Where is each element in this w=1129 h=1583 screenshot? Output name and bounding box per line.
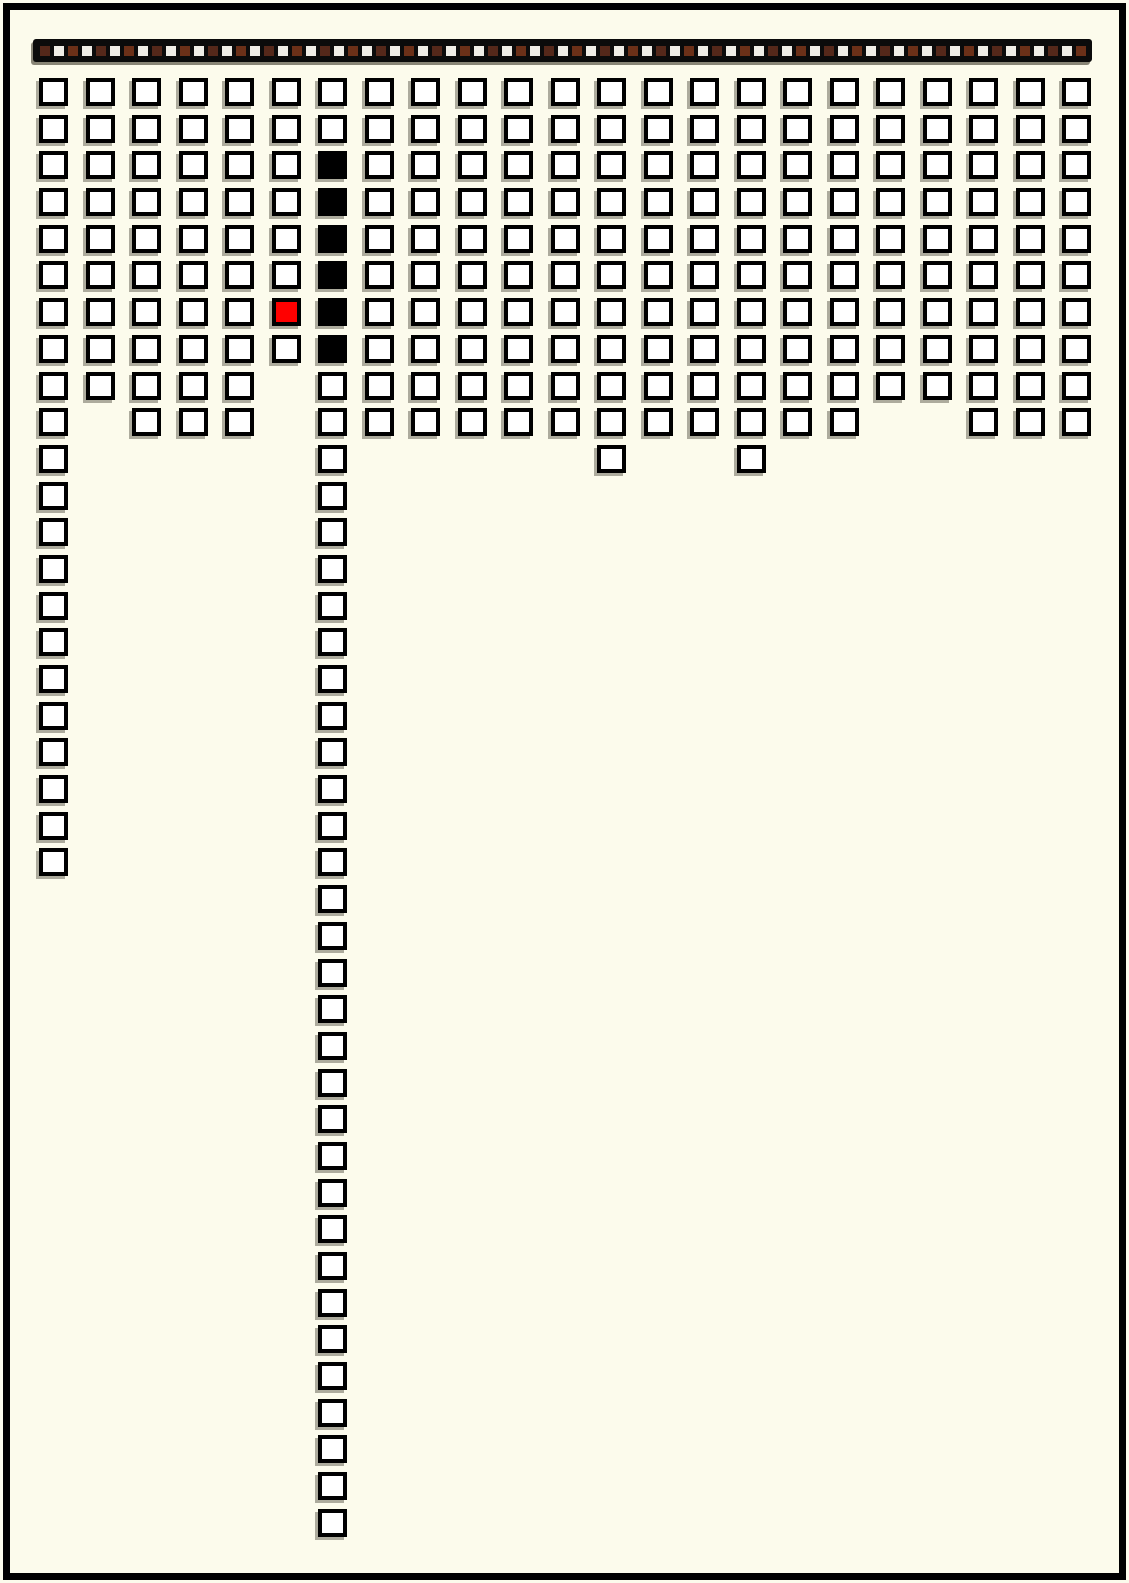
checkbox-cell[interactable]: [551, 372, 580, 400]
checkbox-cell[interactable]: [923, 335, 952, 363]
checkbox-cell[interactable]: [923, 188, 952, 216]
strip-cell-brown: [544, 46, 554, 56]
strip-cell-brown: [740, 46, 750, 56]
checkbox-cell[interactable]: [504, 115, 533, 143]
checkbox-cell[interactable]: [365, 261, 394, 289]
checkbox-cell[interactable]: [597, 78, 626, 106]
checkbox-cell[interactable]: [39, 555, 68, 583]
checkbox-cell[interactable]: [86, 151, 115, 179]
checkbox-cell[interactable]: [132, 225, 161, 253]
strip-cell-brown: [320, 46, 330, 56]
checkbox-cell[interactable]: [644, 335, 673, 363]
checkbox-cell[interactable]: [132, 151, 161, 179]
strip-cell-brown: [292, 46, 302, 56]
checkbox-cell[interactable]: [318, 1069, 347, 1097]
checkbox-column-21: [969, 78, 998, 436]
checkbox-cell[interactable]: [830, 335, 859, 363]
checkbox-cell[interactable]: [458, 261, 487, 289]
checkbox-cell[interactable]: [690, 408, 719, 436]
checkbox-cell[interactable]: [644, 115, 673, 143]
checkbox-cell[interactable]: [179, 115, 208, 143]
checkbox-cell[interactable]: [876, 151, 905, 179]
checkbox-cell[interactable]: [86, 188, 115, 216]
checkbox-cell[interactable]: [737, 372, 766, 400]
checkbox-cell[interactable]: [783, 372, 812, 400]
checkbox-cell[interactable]: [318, 372, 347, 400]
checkbox-cell[interactable]: [365, 335, 394, 363]
checkbox-cell[interactable]: [783, 188, 812, 216]
strip-cell-brown: [964, 46, 974, 56]
strip-cell-brown: [152, 46, 162, 56]
checkbox-cell[interactable]: [39, 261, 68, 289]
checkbox-cell[interactable]: [597, 261, 626, 289]
checkbox-cell[interactable]: [1062, 151, 1091, 179]
checkbox-cell[interactable]: [411, 115, 440, 143]
checkbox-cell[interactable]: [504, 298, 533, 326]
checkbox-cell[interactable]: [179, 372, 208, 400]
checkbox-cell[interactable]: [86, 372, 115, 400]
checkbox-cell[interactable]: [86, 261, 115, 289]
checkbox-cell[interactable]: [969, 225, 998, 253]
checkbox-cell[interactable]: [597, 151, 626, 179]
checkbox-cell[interactable]: [318, 665, 347, 693]
checkbox-cell[interactable]: [458, 335, 487, 363]
checkbox-cell[interactable]: [132, 298, 161, 326]
checkbox-cell[interactable]: [690, 151, 719, 179]
checkbox-cell[interactable]: [551, 78, 580, 106]
checkbox-cell[interactable]: [458, 115, 487, 143]
checkbox-cell[interactable]: [1016, 408, 1045, 436]
checkbox-cell[interactable]: [458, 151, 487, 179]
checkbox-cell[interactable]: [969, 188, 998, 216]
checkbox-cell[interactable]: [272, 115, 301, 143]
checkbox-cell[interactable]: [365, 298, 394, 326]
checkbox-cell[interactable]: [783, 408, 812, 436]
checkbox-cell[interactable]: [690, 372, 719, 400]
checkbox-cell[interactable]: [551, 335, 580, 363]
checkbox-cell-black[interactable]: [318, 151, 347, 179]
checkbox-cell[interactable]: [737, 151, 766, 179]
checkbox-cell[interactable]: [783, 225, 812, 253]
checkbox-cell[interactable]: [597, 372, 626, 400]
checkbox-column-8: [365, 78, 394, 436]
checkbox-cell[interactable]: [458, 225, 487, 253]
checkbox-cell[interactable]: [830, 261, 859, 289]
checkbox-cell[interactable]: [132, 115, 161, 143]
checkbox-column-20: [923, 78, 952, 400]
checkbox-cell[interactable]: [737, 225, 766, 253]
checkbox-cell[interactable]: [597, 408, 626, 436]
checkbox-cell[interactable]: [923, 261, 952, 289]
strip-cell-white: [614, 46, 624, 56]
checkbox-cell[interactable]: [1062, 115, 1091, 143]
checkbox-cell[interactable]: [365, 225, 394, 253]
checkbox-cell[interactable]: [969, 335, 998, 363]
checkbox-cell[interactable]: [504, 78, 533, 106]
checkbox-cell[interactable]: [39, 151, 68, 179]
checkbox-cell[interactable]: [411, 408, 440, 436]
checkbox-cell[interactable]: [39, 298, 68, 326]
checkbox-cell[interactable]: [179, 151, 208, 179]
checkbox-cell[interactable]: [318, 922, 347, 950]
checkbox-cell[interactable]: [1062, 408, 1091, 436]
checkbox-cell[interactable]: [272, 261, 301, 289]
checkbox-cell[interactable]: [411, 188, 440, 216]
checkbox-cell[interactable]: [644, 408, 673, 436]
checkbox-cell[interactable]: [225, 408, 254, 436]
checkbox-cell[interactable]: [597, 188, 626, 216]
checkbox-cell[interactable]: [318, 1215, 347, 1243]
checkbox-cell[interactable]: [318, 482, 347, 510]
checkbox-cell[interactable]: [504, 188, 533, 216]
strip-cell-white: [922, 46, 932, 56]
checkbox-cell[interactable]: [876, 225, 905, 253]
checkbox-cell[interactable]: [737, 115, 766, 143]
checkbox-cell[interactable]: [225, 298, 254, 326]
checkbox-cell[interactable]: [179, 261, 208, 289]
checkbox-cell[interactable]: [318, 115, 347, 143]
checkbox-cell[interactable]: [830, 78, 859, 106]
checkbox-cell[interactable]: [318, 1289, 347, 1317]
checkbox-column-3: [132, 78, 161, 436]
checkbox-cell[interactable]: [318, 408, 347, 436]
checkbox-cell[interactable]: [411, 298, 440, 326]
checkbox-cell[interactable]: [272, 151, 301, 179]
checkbox-cell[interactable]: [132, 408, 161, 436]
checkbox-cell[interactable]: [644, 188, 673, 216]
checkbox-cell[interactable]: [39, 335, 68, 363]
checkbox-cell[interactable]: [644, 151, 673, 179]
checkbox-cell[interactable]: [179, 335, 208, 363]
checkbox-cell[interactable]: [365, 372, 394, 400]
checkbox-cell-black[interactable]: [318, 188, 347, 216]
checkbox-cell[interactable]: [318, 702, 347, 730]
checkbox-cell[interactable]: [318, 1399, 347, 1427]
checkbox-cell[interactable]: [272, 78, 301, 106]
checkbox-cell[interactable]: [39, 702, 68, 730]
checkbox-cell[interactable]: [132, 78, 161, 106]
checkbox-cell[interactable]: [411, 225, 440, 253]
checkbox-cell[interactable]: [86, 225, 115, 253]
checkbox-cell[interactable]: [318, 1142, 347, 1170]
checkbox-cell[interactable]: [179, 78, 208, 106]
checkbox-cell[interactable]: [1016, 225, 1045, 253]
strip-cell-white: [838, 46, 848, 56]
checkbox-cell[interactable]: [272, 225, 301, 253]
checkbox-cell[interactable]: [504, 151, 533, 179]
checkbox-cell[interactable]: [225, 78, 254, 106]
checkbox-cell[interactable]: [318, 1362, 347, 1390]
checkbox-cell[interactable]: [644, 298, 673, 326]
checkbox-cell[interactable]: [39, 738, 68, 766]
checkbox-cell[interactable]: [690, 225, 719, 253]
checkbox-cell[interactable]: [411, 372, 440, 400]
checkbox-cell[interactable]: [1016, 151, 1045, 179]
checkbox-cell[interactable]: [365, 188, 394, 216]
checkbox-cell[interactable]: [597, 225, 626, 253]
checkbox-cell[interactable]: [690, 335, 719, 363]
checkbox-cell[interactable]: [365, 78, 394, 106]
checkbox-cell[interactable]: [86, 335, 115, 363]
checkbox-cell[interactable]: [86, 298, 115, 326]
checkbox-cell[interactable]: [969, 298, 998, 326]
checkbox-cell[interactable]: [830, 372, 859, 400]
checkbox-cell[interactable]: [551, 151, 580, 179]
checkbox-cell[interactable]: [39, 518, 68, 546]
checkbox-cell[interactable]: [39, 188, 68, 216]
checkbox-cell[interactable]: [39, 812, 68, 840]
checkbox-cell[interactable]: [225, 151, 254, 179]
checkbox-cell[interactable]: [830, 151, 859, 179]
checkbox-cell[interactable]: [597, 298, 626, 326]
checkbox-cell[interactable]: [830, 188, 859, 216]
checkbox-cell[interactable]: [318, 555, 347, 583]
checkbox-cell[interactable]: [644, 225, 673, 253]
checkbox-cell[interactable]: [179, 225, 208, 253]
checkbox-cell[interactable]: [458, 372, 487, 400]
checkbox-cell[interactable]: [783, 151, 812, 179]
checkbox-cell[interactable]: [504, 335, 533, 363]
checkbox-cell[interactable]: [551, 188, 580, 216]
checkbox-cell[interactable]: [737, 188, 766, 216]
checkbox-cell[interactable]: [876, 78, 905, 106]
checkbox-cell[interactable]: [876, 261, 905, 289]
checkbox-cell[interactable]: [39, 665, 68, 693]
checkbox-cell[interactable]: [504, 408, 533, 436]
checkbox-cell[interactable]: [876, 372, 905, 400]
checkbox-cell[interactable]: [318, 1509, 347, 1537]
checkbox-cell[interactable]: [690, 188, 719, 216]
checkbox-cell[interactable]: [225, 115, 254, 143]
checkbox-cell[interactable]: [272, 188, 301, 216]
checkbox-cell[interactable]: [1016, 188, 1045, 216]
checkbox-cell[interactable]: [411, 151, 440, 179]
checkbox-cell[interactable]: [1062, 78, 1091, 106]
checkbox-cell[interactable]: [969, 151, 998, 179]
strip-cell-white: [1034, 46, 1044, 56]
checkbox-cell[interactable]: [1016, 372, 1045, 400]
checkbox-cell[interactable]: [179, 298, 208, 326]
checkbox-cell[interactable]: [365, 115, 394, 143]
checkbox-cell[interactable]: [1062, 298, 1091, 326]
checkbox-cell[interactable]: [690, 115, 719, 143]
checkbox-cell[interactable]: [225, 261, 254, 289]
checkbox-cell[interactable]: [458, 188, 487, 216]
checkbox-cell[interactable]: [411, 335, 440, 363]
checkbox-cell[interactable]: [272, 335, 301, 363]
checkbox-cell[interactable]: [1062, 188, 1091, 216]
checkbox-cell[interactable]: [458, 78, 487, 106]
checkbox-cell[interactable]: [86, 115, 115, 143]
checkbox-cell[interactable]: [318, 812, 347, 840]
checkbox-column-7: [318, 78, 347, 1537]
checkbox-cell[interactable]: [1062, 261, 1091, 289]
checkbox-cell[interactable]: [225, 188, 254, 216]
checkbox-cell[interactable]: [1062, 225, 1091, 253]
checkbox-cell[interactable]: [923, 115, 952, 143]
checkbox-cell[interactable]: [365, 408, 394, 436]
checkbox-cell[interactable]: [737, 335, 766, 363]
checkbox-cell[interactable]: [318, 995, 347, 1023]
strip-cell-white: [894, 46, 904, 56]
checkbox-cell[interactable]: [923, 225, 952, 253]
checkbox-cell[interactable]: [644, 78, 673, 106]
film-strip-bar: [33, 39, 1092, 62]
checkbox-cell[interactable]: [969, 408, 998, 436]
checkbox-cell[interactable]: [318, 628, 347, 656]
checkbox-cell[interactable]: [923, 372, 952, 400]
checkbox-cell[interactable]: [504, 225, 533, 253]
checkbox-cell[interactable]: [39, 775, 68, 803]
checkbox-cell[interactable]: [783, 298, 812, 326]
checkbox-cell[interactable]: [551, 298, 580, 326]
checkbox-cell[interactable]: [318, 775, 347, 803]
checkbox-cell[interactable]: [1016, 115, 1045, 143]
checkbox-cell[interactable]: [923, 151, 952, 179]
checkbox-cell[interactable]: [597, 335, 626, 363]
checkbox-cell[interactable]: [39, 482, 68, 510]
checkbox-cell[interactable]: [504, 261, 533, 289]
checkbox-cell-red[interactable]: [272, 298, 301, 326]
checkbox-cell[interactable]: [783, 261, 812, 289]
checkbox-cell[interactable]: [923, 298, 952, 326]
checkbox-cell[interactable]: [39, 372, 68, 400]
checkbox-cell[interactable]: [39, 445, 68, 473]
checkbox-cell[interactable]: [690, 78, 719, 106]
checkbox-cell[interactable]: [737, 445, 766, 473]
checkbox-cell[interactable]: [830, 115, 859, 143]
checkbox-cell[interactable]: [39, 628, 68, 656]
checkbox-column-10: [458, 78, 487, 436]
strip-cell-white: [334, 46, 344, 56]
checkbox-cell[interactable]: [876, 298, 905, 326]
checkbox-cell[interactable]: [737, 78, 766, 106]
checkbox-cell[interactable]: [132, 188, 161, 216]
checkbox-cell[interactable]: [690, 298, 719, 326]
strip-cell-brown: [180, 46, 190, 56]
strip-cell-brown: [516, 46, 526, 56]
checkbox-cell[interactable]: [1016, 298, 1045, 326]
strip-cell-brown: [68, 46, 78, 56]
checkbox-cell[interactable]: [318, 959, 347, 987]
checkbox-cell[interactable]: [318, 1472, 347, 1500]
checkbox-cell[interactable]: [86, 78, 115, 106]
checkbox-cell[interactable]: [132, 335, 161, 363]
checkbox-cell[interactable]: [969, 78, 998, 106]
checkbox-cell[interactable]: [830, 298, 859, 326]
checkbox-cell[interactable]: [318, 1435, 347, 1463]
checkbox-cell[interactable]: [318, 1105, 347, 1133]
checkbox-cell[interactable]: [1062, 335, 1091, 363]
checkbox-cell[interactable]: [737, 298, 766, 326]
checkbox-cell[interactable]: [597, 445, 626, 473]
checkbox-cell[interactable]: [551, 115, 580, 143]
checkbox-cell[interactable]: [225, 225, 254, 253]
checkbox-cell[interactable]: [179, 188, 208, 216]
checkbox-cell[interactable]: [39, 78, 68, 106]
checkbox-cell-black[interactable]: [318, 335, 347, 363]
strip-cell-brown: [712, 46, 722, 56]
checkbox-cell[interactable]: [830, 408, 859, 436]
checkbox-cell[interactable]: [876, 335, 905, 363]
checkbox-cell[interactable]: [39, 848, 68, 876]
checkbox-cell[interactable]: [876, 188, 905, 216]
checkbox-cell[interactable]: [597, 115, 626, 143]
checkbox-cell[interactable]: [1016, 335, 1045, 363]
checkbox-cell[interactable]: [1016, 78, 1045, 106]
checkbox-cell[interactable]: [318, 1325, 347, 1353]
checkbox-cell[interactable]: [179, 408, 208, 436]
strip-cell-white: [642, 46, 652, 56]
checkbox-cell[interactable]: [39, 115, 68, 143]
checkbox-cell[interactable]: [923, 78, 952, 106]
checkbox-cell-black[interactable]: [318, 225, 347, 253]
checkbox-cell[interactable]: [551, 408, 580, 436]
checkbox-cell[interactable]: [458, 298, 487, 326]
checkbox-cell[interactable]: [39, 225, 68, 253]
checkbox-cell[interactable]: [39, 408, 68, 436]
checkbox-cell[interactable]: [318, 1179, 347, 1207]
checkbox-cell[interactable]: [365, 151, 394, 179]
checkbox-cell[interactable]: [458, 408, 487, 436]
checkbox-cell[interactable]: [783, 335, 812, 363]
checkbox-cell[interactable]: [876, 115, 905, 143]
checkbox-cell[interactable]: [737, 261, 766, 289]
checkbox-cell[interactable]: [318, 885, 347, 913]
strip-cell-white: [782, 46, 792, 56]
checkbox-cell[interactable]: [551, 225, 580, 253]
checkbox-cell[interactable]: [644, 261, 673, 289]
checkbox-column-17: [783, 78, 812, 436]
checkbox-cell[interactable]: [318, 1252, 347, 1280]
checkbox-cell[interactable]: [318, 848, 347, 876]
strip-cell-brown: [908, 46, 918, 56]
strip-cell-white: [754, 46, 764, 56]
checkbox-cell[interactable]: [969, 261, 998, 289]
checkbox-cell[interactable]: [1062, 372, 1091, 400]
checkbox-cell[interactable]: [318, 738, 347, 766]
checkbox-cell[interactable]: [225, 335, 254, 363]
checkbox-cell[interactable]: [969, 372, 998, 400]
checkbox-cell[interactable]: [690, 261, 719, 289]
checkbox-cell[interactable]: [737, 408, 766, 436]
checkbox-cell[interactable]: [318, 518, 347, 546]
checkbox-cell[interactable]: [318, 592, 347, 620]
checkbox-cell[interactable]: [551, 261, 580, 289]
checkbox-cell[interactable]: [830, 225, 859, 253]
checkbox-cell[interactable]: [318, 1032, 347, 1060]
checkbox-cell-black[interactable]: [318, 298, 347, 326]
page: [0, 0, 1129, 1583]
checkbox-cell[interactable]: [783, 115, 812, 143]
strip-cell-white: [54, 46, 64, 56]
checkbox-cell[interactable]: [411, 261, 440, 289]
checkbox-cell[interactable]: [644, 372, 673, 400]
checkbox-cell[interactable]: [225, 372, 254, 400]
checkbox-grid: [39, 78, 1091, 1537]
checkbox-cell[interactable]: [411, 78, 440, 106]
checkbox-cell-black[interactable]: [318, 261, 347, 289]
checkbox-cell[interactable]: [1016, 261, 1045, 289]
checkbox-cell[interactable]: [132, 261, 161, 289]
checkbox-cell[interactable]: [783, 78, 812, 106]
checkbox-cell[interactable]: [969, 115, 998, 143]
checkbox-cell[interactable]: [39, 592, 68, 620]
checkbox-cell[interactable]: [504, 372, 533, 400]
checkbox-cell[interactable]: [318, 78, 347, 106]
checkbox-cell[interactable]: [132, 372, 161, 400]
checkbox-cell[interactable]: [318, 445, 347, 473]
